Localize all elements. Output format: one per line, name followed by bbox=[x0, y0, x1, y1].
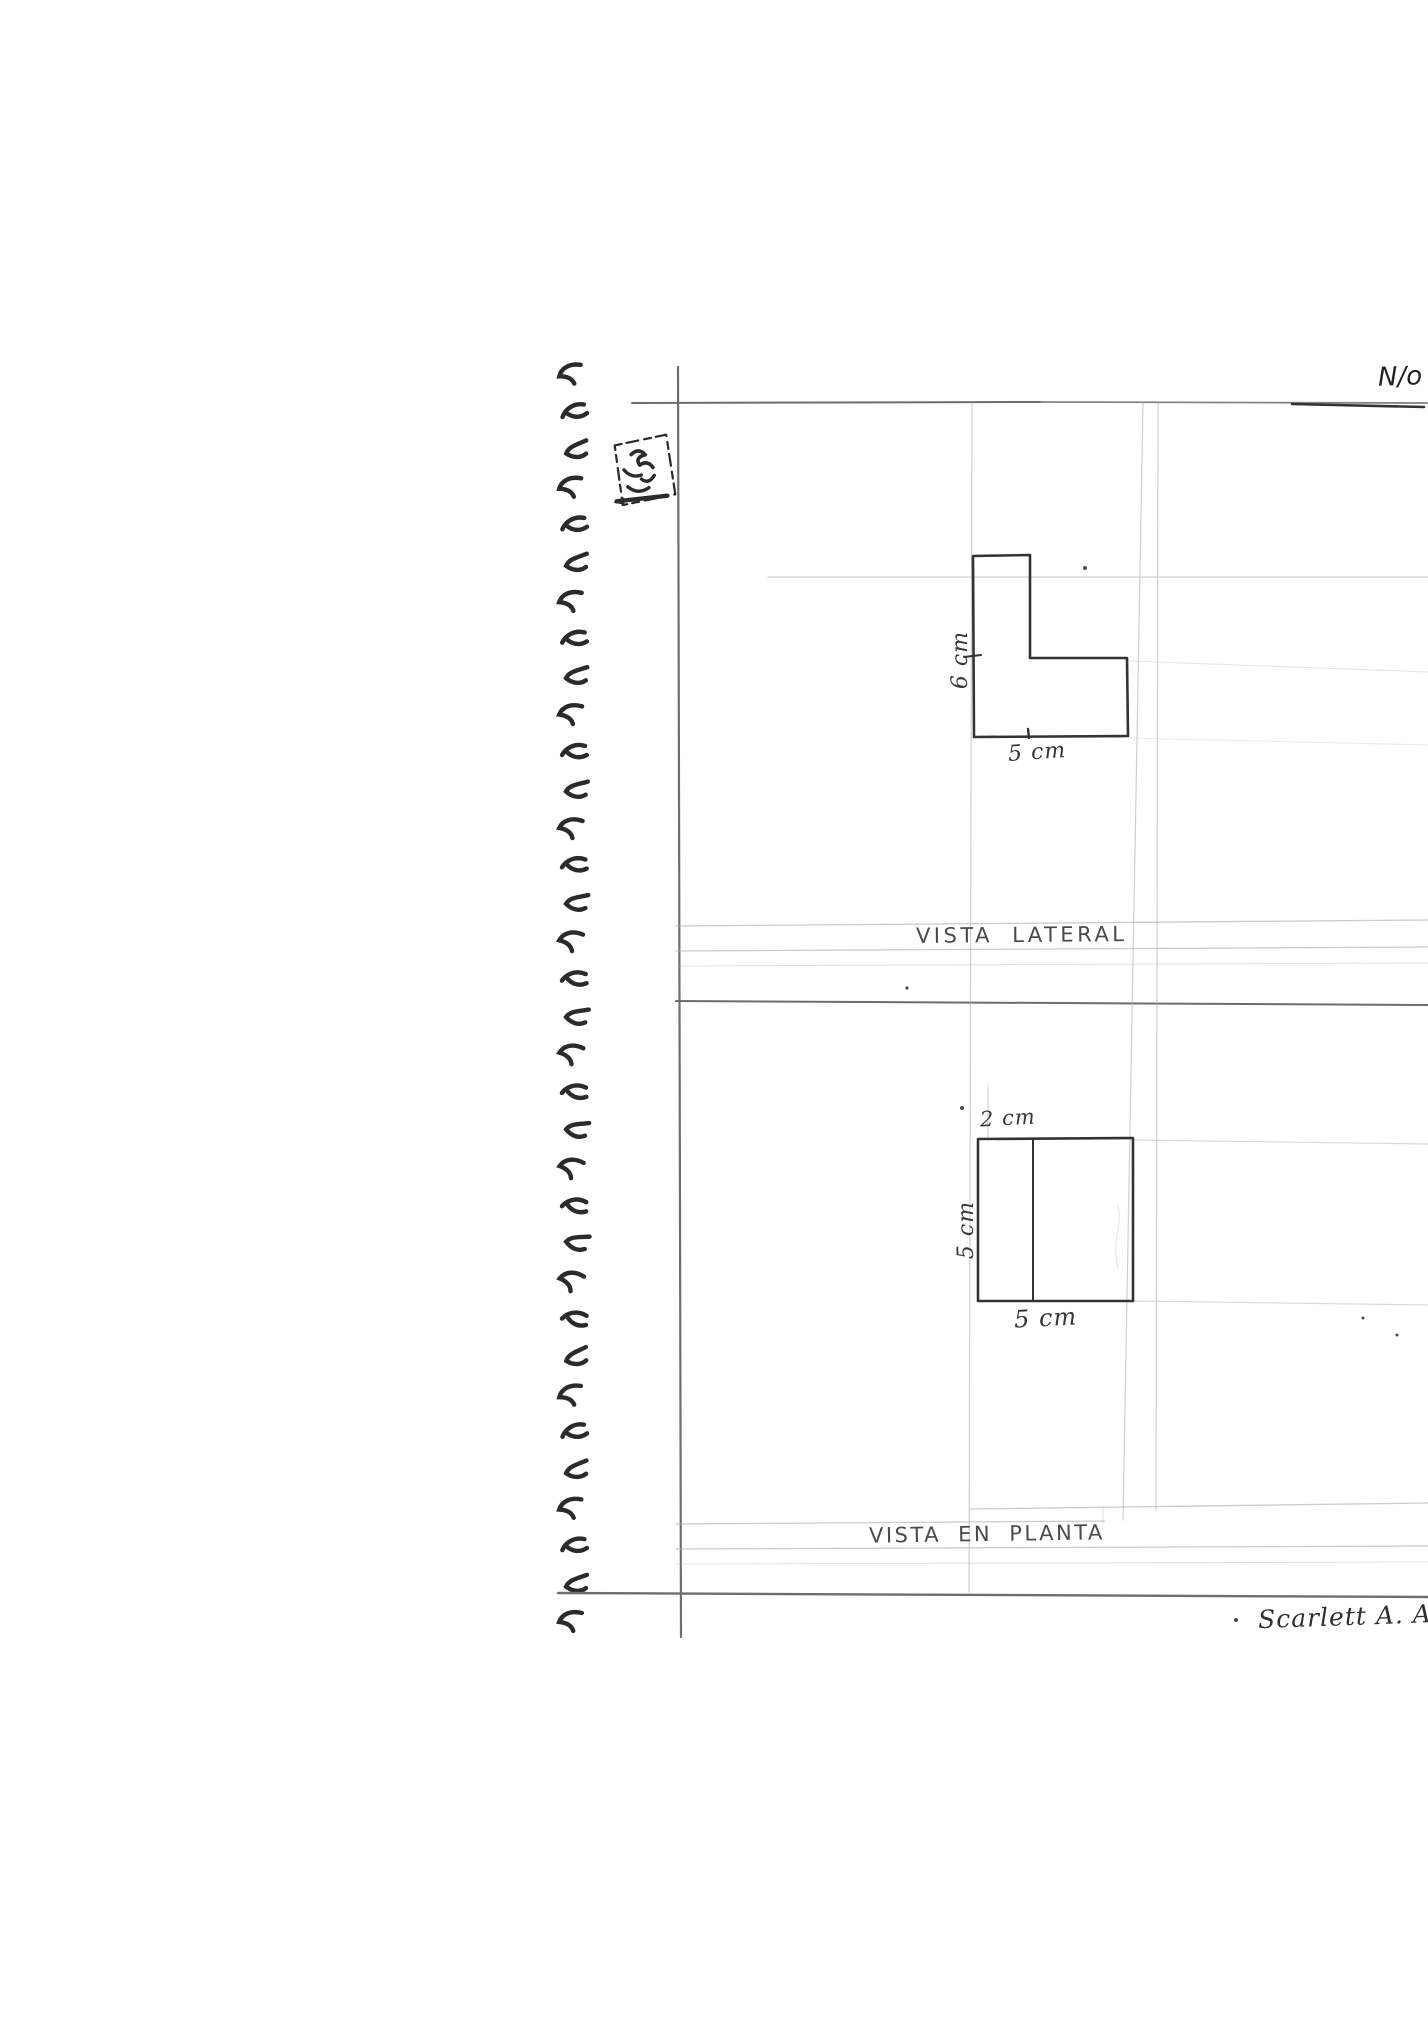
scan-specks bbox=[905, 566, 1398, 1622]
top-rule bbox=[632, 402, 1428, 407]
view-title-plan: VISTA EN PLANTA bbox=[869, 1520, 1105, 1547]
dim-label-plan-side: 5 cm bbox=[954, 1200, 978, 1260]
lateral-view-shape bbox=[964, 555, 1128, 738]
width-tick bbox=[1028, 729, 1029, 738]
section-rule-bottom bbox=[558, 1593, 1428, 1597]
dim-label-plan-bottom: 5 cm bbox=[1013, 1302, 1077, 1333]
dim-label-lateral-height: 6 cm bbox=[948, 630, 972, 690]
drawing-layer bbox=[0, 0, 1428, 2018]
page-number-label: N/o bbox=[1377, 361, 1422, 393]
dim-label-plan-top: 2 cm bbox=[979, 1105, 1036, 1132]
stamp-scribble-icon bbox=[610, 434, 675, 505]
plan-view-shape bbox=[978, 1138, 1133, 1301]
view-title-lateral: VISTA LATERAL bbox=[916, 922, 1128, 948]
section-rule-middle bbox=[676, 1001, 1428, 1005]
scanned-notebook-page: N/o VISTA LATERAL 6 cm 5 cm VISTA EN PLA… bbox=[0, 0, 1428, 2018]
writing-rules bbox=[676, 920, 1428, 1564]
dim-label-lateral-width: 5 cm bbox=[1007, 738, 1067, 767]
signature: Scarlett A. Al bbox=[1258, 1599, 1428, 1634]
projection-lines bbox=[768, 403, 1428, 1592]
